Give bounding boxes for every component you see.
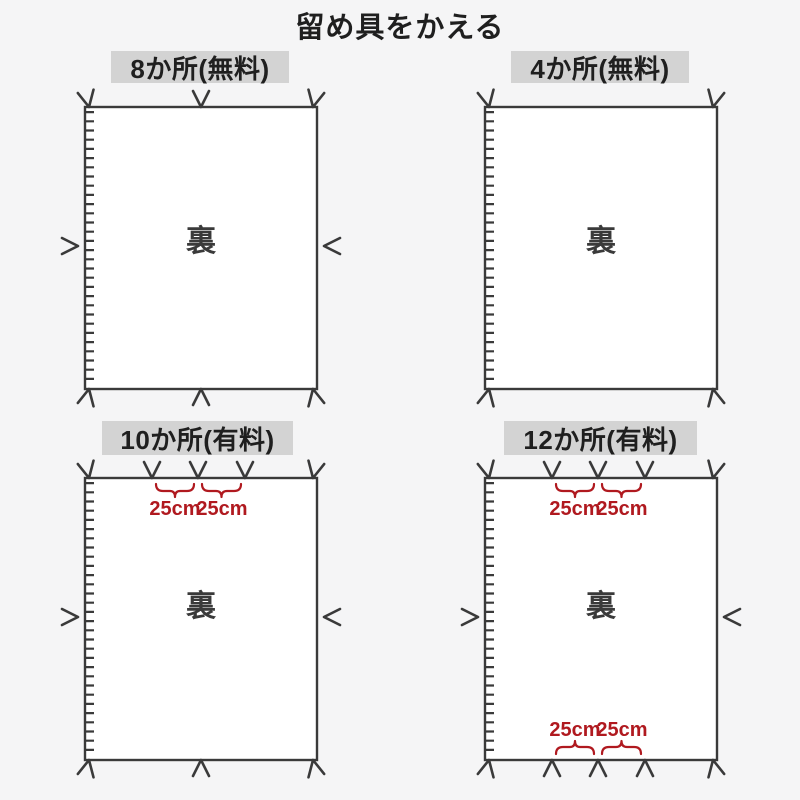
panel-diagram-10-places: 25cm 25cm 裏 (52, 456, 352, 786)
measure-label-bottom-1: 25cm (549, 719, 600, 741)
fastener-mark-top-center-icon (193, 91, 209, 107)
fastener-mark-bottom-center-icon (193, 760, 209, 776)
fastener-mark-right-middle-icon (324, 609, 340, 625)
measure-label-top-2: 25cm (596, 498, 647, 520)
panel-diagram-4-places: 裏 (452, 85, 752, 415)
fastener-mark-top-mid1-icon (144, 462, 160, 478)
fastener-mark-left-middle-icon (62, 238, 78, 254)
fastener-mark-top-mid3-icon (637, 462, 653, 478)
measure-label-top-1: 25cm (549, 498, 600, 520)
measure-label-top-1: 25cm (149, 498, 200, 520)
page-title: 留め具をかえる (0, 4, 800, 46)
fastener-mark-top-mid1-icon (544, 462, 560, 478)
panel-diagram-8-places: 裏 (52, 85, 352, 415)
panel-header-8-free: 8か所(無料) (111, 51, 289, 83)
fastener-mark-bottom-mid1-icon (544, 760, 560, 776)
fastener-mark-bottom-center-icon (193, 389, 209, 405)
fastener-mark-top-mid3-icon (237, 462, 253, 478)
measure-label-bottom-2: 25cm (596, 719, 647, 741)
back-side-label: 裏 (186, 224, 217, 258)
fastener-mark-right-middle-icon (724, 609, 740, 625)
measure-label-top-2: 25cm (196, 498, 247, 520)
fastener-mark-right-middle-icon (324, 238, 340, 254)
fastener-mark-left-middle-icon (62, 609, 78, 625)
fastener-mark-bottom-mid2-icon (590, 760, 606, 776)
back-side-label: 裏 (586, 589, 617, 623)
fastener-mark-left-middle-icon (462, 609, 478, 625)
back-side-label: 裏 (186, 589, 217, 623)
panel-header-10-paid: 10か所(有料) (102, 421, 293, 455)
fastener-mark-top-mid2-icon (590, 462, 606, 478)
panel-header-4-free: 4か所(無料) (511, 51, 689, 83)
fastener-mark-top-mid2-icon (190, 462, 206, 478)
back-side-label: 裏 (586, 224, 617, 258)
panel-diagram-12-places: 25cm 25cm 25cm 25cm 裏 (452, 456, 752, 786)
fastener-mark-bottom-mid3-icon (637, 760, 653, 776)
fastener-options-diagram: 留め具をかえる 8か所(無料) 4か所(無料) 10か所(有料) 12か所(有料… (0, 0, 800, 800)
panel-header-12-paid: 12か所(有料) (504, 421, 697, 455)
